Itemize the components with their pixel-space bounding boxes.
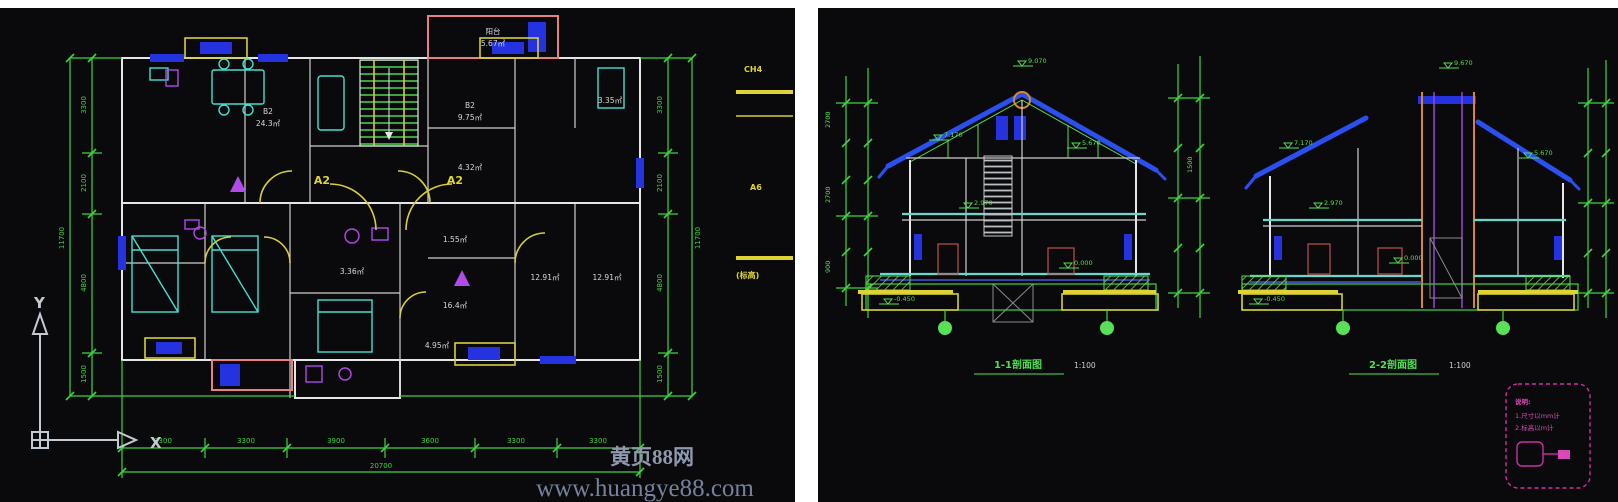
cad-screenshot: 阳台 5.67㎡ B2 24.3㎡ B2 9.75㎡ 4.32㎡ 3.35㎡ 1… (0, 0, 1618, 502)
stack-value: 2700 (824, 186, 832, 203)
ucs-y-label: Y (33, 294, 46, 312)
room-labels: 阳台 5.67㎡ B2 24.3㎡ B2 9.75㎡ 4.32㎡ 3.35㎡ 1… (256, 26, 623, 350)
room-label: B2 (465, 101, 475, 110)
watermark: 黄页88网 www.huangye88.com (536, 445, 754, 502)
dim-value: 1500 (656, 365, 664, 383)
ucs-x-label: X (150, 434, 162, 452)
dim-total: 11700 (58, 227, 66, 249)
dim-value: 4800 (80, 274, 88, 292)
stair (360, 60, 418, 146)
notes-title: 说明: (1515, 397, 1531, 406)
notes-box: 说明: 1.尺寸以mm计 2.标高以m计 (1506, 384, 1590, 488)
edge-note: (标高) (736, 270, 759, 280)
edge-annotations: CH4 A6 (标高) (736, 65, 793, 280)
section-title: 2-2剖面图 (1369, 358, 1417, 371)
room-area: 1.55㎡ (443, 235, 468, 244)
dimension-chain-bottom: 3300 3300 3900 3600 3300 3300 20700 (118, 360, 644, 478)
dim-value: 3300 (589, 437, 607, 445)
room-area: 24.3㎡ (256, 119, 281, 128)
room-area: 12.91㎡ (531, 273, 560, 282)
edge-note: CH4 (744, 65, 763, 74)
elevation: 2.970 (974, 199, 993, 207)
watermark-brand: 黄页88网 (610, 445, 694, 469)
room-area: 4.95㎡ (425, 341, 450, 350)
floor-plan-viewport: 阳台 5.67㎡ B2 24.3㎡ B2 9.75㎡ 4.32㎡ 3.35㎡ 1… (0, 8, 795, 502)
dim-value: 4800 (656, 274, 664, 292)
edge-note: A6 (750, 183, 762, 192)
elevation: 9.670 (1454, 59, 1473, 67)
room-area: 16.4㎡ (443, 301, 468, 310)
elevation: 7.170 (944, 131, 963, 139)
section-scale: 1:100 (1074, 361, 1096, 370)
axis-marker-a2-left: A2 (314, 174, 330, 187)
dim-value: 1500 (80, 365, 88, 383)
dim-value: 3300 (237, 437, 255, 445)
room-area: 9.75㎡ (458, 113, 483, 122)
dim-value: 3600 (421, 437, 439, 445)
floor-plan-drawing: 阳台 5.67㎡ B2 24.3㎡ B2 9.75㎡ 4.32㎡ 3.35㎡ 1… (0, 8, 795, 502)
doors (205, 171, 545, 318)
elevation: 5.670 (1082, 139, 1101, 147)
stack-value: 1500 (1186, 156, 1194, 173)
dim-value: 3300 (507, 437, 525, 445)
dim-stack-right (1578, 60, 1614, 318)
dim-stack-middle: 1500 (1168, 56, 1210, 318)
sections-viewport: 2700 2700 900 (818, 8, 1618, 502)
elevation: -0.450 (1264, 295, 1285, 303)
axis-marker-a2-right: A2 (447, 174, 463, 187)
balcony-area: 5.67㎡ (481, 39, 506, 48)
section-1-1: 9.070 7.170 5.670 2.970 0.000 -0.450 1-1… (858, 57, 1165, 374)
balcony-name: 阳台 (486, 26, 501, 36)
stack-value: 900 (824, 261, 832, 273)
dim-value: 2100 (656, 174, 664, 192)
elevation: -0.450 (894, 295, 915, 303)
elevation: 7.170 (1294, 139, 1313, 147)
room-label: B2 (263, 107, 273, 116)
notes-line: 1.尺寸以mm计 (1515, 411, 1560, 420)
dim-total: 20700 (370, 462, 392, 470)
ucs-icon: Y X (32, 294, 162, 452)
room-area: 12.91㎡ (593, 273, 622, 282)
dim-value: 3300 (80, 96, 88, 114)
dim-value: 3300 (656, 96, 664, 114)
elevation: 0.000 (1404, 254, 1423, 262)
dim-value: 2100 (80, 174, 88, 192)
elevation: 5.670 (1534, 149, 1553, 157)
sections-drawing: 2700 2700 900 (818, 8, 1618, 502)
watermark-url: www.huangye88.com (536, 475, 754, 502)
elevation: 9.070 (1028, 57, 1047, 65)
elevation: 2.970 (1324, 199, 1343, 207)
dim-value: 3900 (327, 437, 345, 445)
elevation: 0.000 (1074, 259, 1093, 267)
room-area: 4.32㎡ (458, 163, 483, 172)
dim-total: 11700 (694, 227, 702, 249)
section-2-2: 9.670 7.170 5.670 2.970 0.000 -0.450 2-2… (1238, 59, 1579, 374)
section-scale: 1:100 (1449, 361, 1471, 370)
notes-line: 2.标高以m计 (1515, 423, 1554, 432)
section-title: 1-1剖面图 (994, 358, 1042, 371)
room-area: 3.36㎡ (340, 267, 365, 276)
room-area: 3.35㎡ (598, 96, 623, 105)
stack-value: 2700 (824, 111, 832, 128)
